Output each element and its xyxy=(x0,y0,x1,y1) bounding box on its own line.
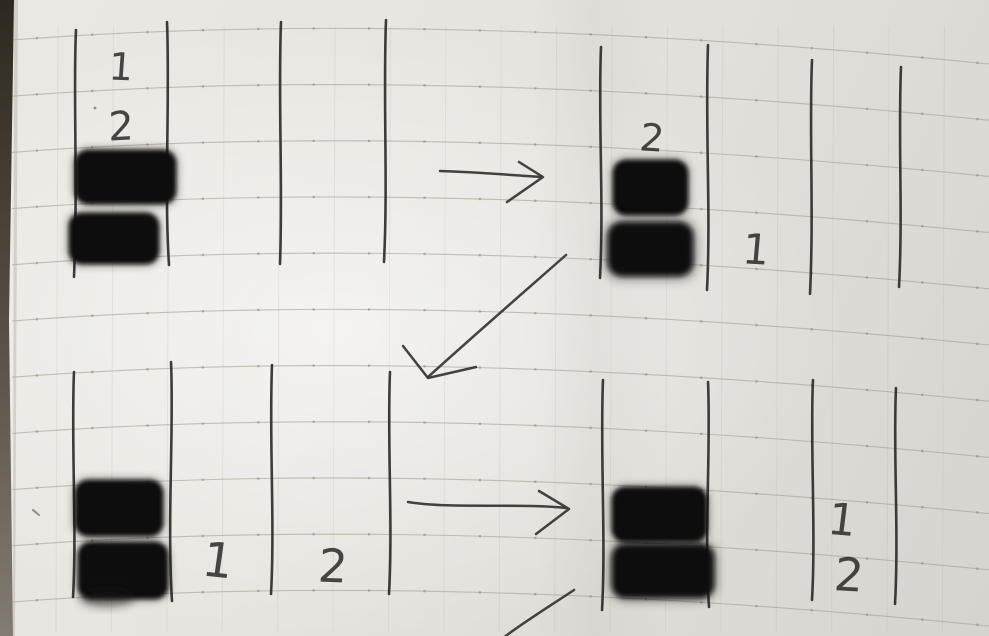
block xyxy=(608,222,693,276)
column-line xyxy=(899,67,901,287)
arrow-head xyxy=(403,346,476,378)
state-1-label-1: 1 xyxy=(108,48,135,87)
arrow-shaft xyxy=(408,502,566,508)
state-2-label-1: 1 xyxy=(741,228,771,271)
vertical-grid-line xyxy=(887,26,889,632)
state-1-label-2: 2 xyxy=(108,106,134,147)
ruled-line xyxy=(12,422,989,458)
vertical-grid-line xyxy=(721,26,723,632)
column-line xyxy=(602,380,603,610)
column-line xyxy=(600,47,601,278)
vertical-grid-line xyxy=(444,26,446,632)
ruled-line xyxy=(12,28,989,64)
state-2-label-2: 2 xyxy=(638,118,666,158)
column-line xyxy=(170,362,172,601)
marker-bleed xyxy=(80,589,134,607)
block xyxy=(78,542,168,599)
state-4-label-2: 2 xyxy=(832,551,865,598)
page-edge-shadow xyxy=(0,0,14,636)
column-line xyxy=(895,388,896,604)
page-left-edge xyxy=(0,0,18,636)
vertical-grid-line xyxy=(555,26,557,632)
block xyxy=(75,150,176,204)
pencil-dot xyxy=(94,107,97,110)
block xyxy=(75,480,163,536)
down-left-arrow-1 xyxy=(403,255,566,378)
state-4-label-1: 1 xyxy=(825,498,858,544)
column-line xyxy=(280,22,281,264)
state-2-block-stack xyxy=(606,159,695,278)
state-3-label-2: 2 xyxy=(317,543,349,590)
right-arrow-2 xyxy=(408,491,569,534)
down-left-arrow-2 xyxy=(503,590,574,636)
column-line xyxy=(389,372,390,594)
block xyxy=(612,487,707,542)
column-line xyxy=(271,365,272,594)
vertical-grid-line xyxy=(56,26,58,632)
arrow-shaft xyxy=(503,590,574,636)
block xyxy=(613,160,688,215)
column-line xyxy=(73,372,74,597)
arrows xyxy=(403,162,574,636)
arrow-shaft xyxy=(440,171,541,177)
vertical-grid-line xyxy=(942,26,944,632)
arrow-head xyxy=(536,491,569,534)
state-3-block-stack xyxy=(74,479,169,607)
arrow-head xyxy=(507,162,543,202)
column-line xyxy=(707,45,708,290)
right-arrow-1 xyxy=(440,162,543,202)
grid-dots xyxy=(12,422,989,458)
vertical-grid-line xyxy=(776,26,778,632)
notebook-page-photo: 1 2 2 1 1 2 1 2 xyxy=(0,0,989,636)
block xyxy=(612,544,714,598)
column-line xyxy=(810,60,812,294)
state-1-block-stack xyxy=(68,149,177,265)
grid-dots xyxy=(12,28,989,64)
column-line xyxy=(384,20,386,262)
pencil-tick xyxy=(33,510,39,515)
page-edge-highlight xyxy=(13,0,18,636)
block xyxy=(69,213,159,264)
state-4-block-stack xyxy=(611,486,715,599)
vertical-grid-line xyxy=(499,26,501,632)
arrow-shaft xyxy=(428,255,566,377)
column-line xyxy=(812,380,813,600)
